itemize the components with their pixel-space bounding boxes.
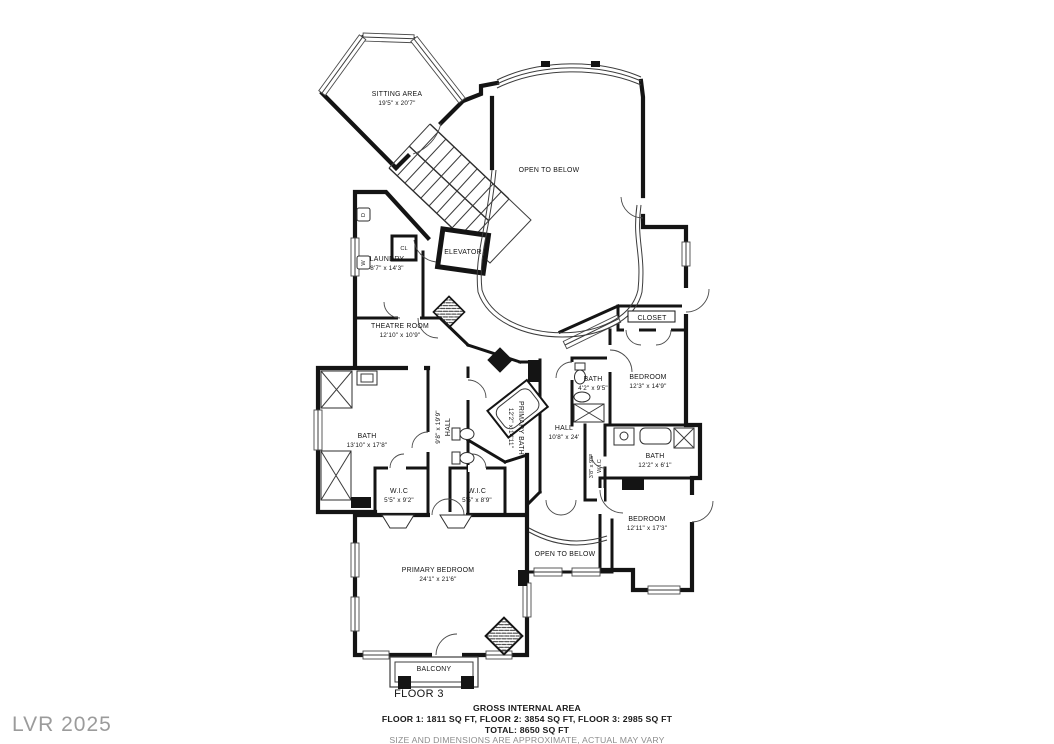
exterior-walls	[318, 37, 700, 655]
total-area-line: TOTAL: 8650 SQ FT	[485, 725, 570, 735]
dims-laundry: 8'7" x 14'3"	[370, 265, 403, 272]
dims-hall-right: 10'8" x 24'	[549, 434, 580, 441]
label-hall-left: HALL	[445, 418, 452, 436]
dims-bath2: 4'2" x 9'5"	[578, 385, 608, 392]
door-openings	[388, 288, 697, 659]
label-bath3: BATH	[646, 453, 665, 460]
label-theatre-room: THEATRE ROOM	[371, 323, 429, 330]
label-primary-bath: PRIMARY BATH	[517, 401, 524, 455]
dims-primary-bedroom: 24'1" x 21'6"	[419, 576, 456, 583]
dims-primary-bath: 12'2" x 14'11"	[507, 408, 514, 448]
label-open-to-below-top: OPEN TO BELOW	[519, 167, 580, 174]
dims-wic3: 3'8" x 9'5"	[589, 454, 595, 478]
dims-wic2: 5'5" x 8'9"	[462, 497, 492, 504]
windows	[314, 33, 690, 659]
label-open-to-below-bottom: OPEN TO BELOW	[535, 551, 596, 558]
disclaimer-line: SIZE AND DIMENSIONS ARE APPROXIMATE, ACT…	[389, 735, 664, 744]
label-balcony: BALCONY	[417, 666, 452, 673]
floor-areas-line: FLOOR 1: 1811 SQ FT, FLOOR 2: 3854 SQ FT…	[382, 714, 673, 724]
dims-theatre-room: 12'10" x 10'9"	[380, 332, 421, 339]
label-primary-bedroom: PRIMARY BEDROOM	[402, 567, 474, 574]
balcony-railing	[390, 657, 478, 689]
floor-plan-page: SITTING AREA 19'5" x 20'7" OPEN TO BELOW…	[0, 0, 1054, 744]
dims-bath3: 12'2" x 6'1"	[638, 462, 671, 469]
dims-sitting-area: 19'5" x 20'7"	[378, 100, 415, 107]
dims-hall-left: 9'8" x 19'9"	[435, 410, 442, 443]
area-summary: GROSS INTERNAL AREA FLOOR 1: 1811 SQ FT,…	[382, 703, 673, 744]
label-wic1: W.I.C	[390, 488, 408, 495]
label-elevator: ELEVATOR	[444, 249, 482, 256]
label-sitting-area: SITTING AREA	[372, 91, 423, 98]
watermark: LVR 2025	[12, 713, 112, 736]
gross-area-title: GROSS INTERNAL AREA	[473, 703, 582, 713]
label-bath-left: BATH	[358, 433, 377, 440]
label-bedroom3: BEDROOM	[628, 516, 665, 523]
label-hall-right: HALL	[555, 425, 573, 432]
label-bath2: BATH	[584, 376, 603, 383]
label-washer: W	[361, 260, 367, 266]
room-labels: SITTING AREA 19'5" x 20'7" OPEN TO BELOW…	[347, 91, 675, 673]
label-closet: CLOSET	[637, 315, 667, 322]
dims-bath-left: 13'10" x 17'8"	[347, 442, 388, 449]
dims-wic1: 5'5" x 9'2"	[384, 497, 414, 504]
label-closet-cl: CL	[400, 246, 407, 252]
dims-bedroom2: 12'3" x 14'9"	[629, 383, 666, 390]
label-laundry: LAUNDRY	[370, 256, 405, 263]
floor-number-label: FLOOR 3	[394, 688, 444, 700]
label-dryer: D	[361, 213, 367, 217]
label-wic2: W.I.C	[468, 488, 486, 495]
label-wic3: W.I.C	[597, 459, 603, 473]
floor-plan-drawing: SITTING AREA 19'5" x 20'7" OPEN TO BELOW…	[0, 0, 1054, 744]
dims-bedroom3: 12'11" x 17'3"	[627, 525, 667, 532]
label-bedroom2: BEDROOM	[629, 374, 666, 381]
